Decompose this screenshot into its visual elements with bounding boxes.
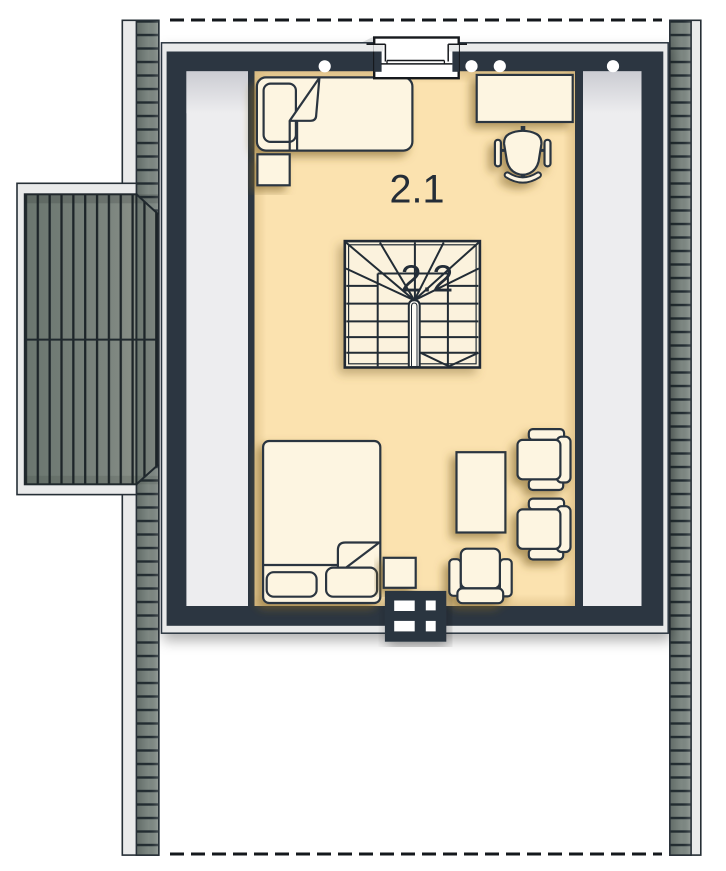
svg-text:2.2: 2.2: [401, 258, 454, 300]
svg-text:2.1: 2.1: [390, 168, 445, 212]
